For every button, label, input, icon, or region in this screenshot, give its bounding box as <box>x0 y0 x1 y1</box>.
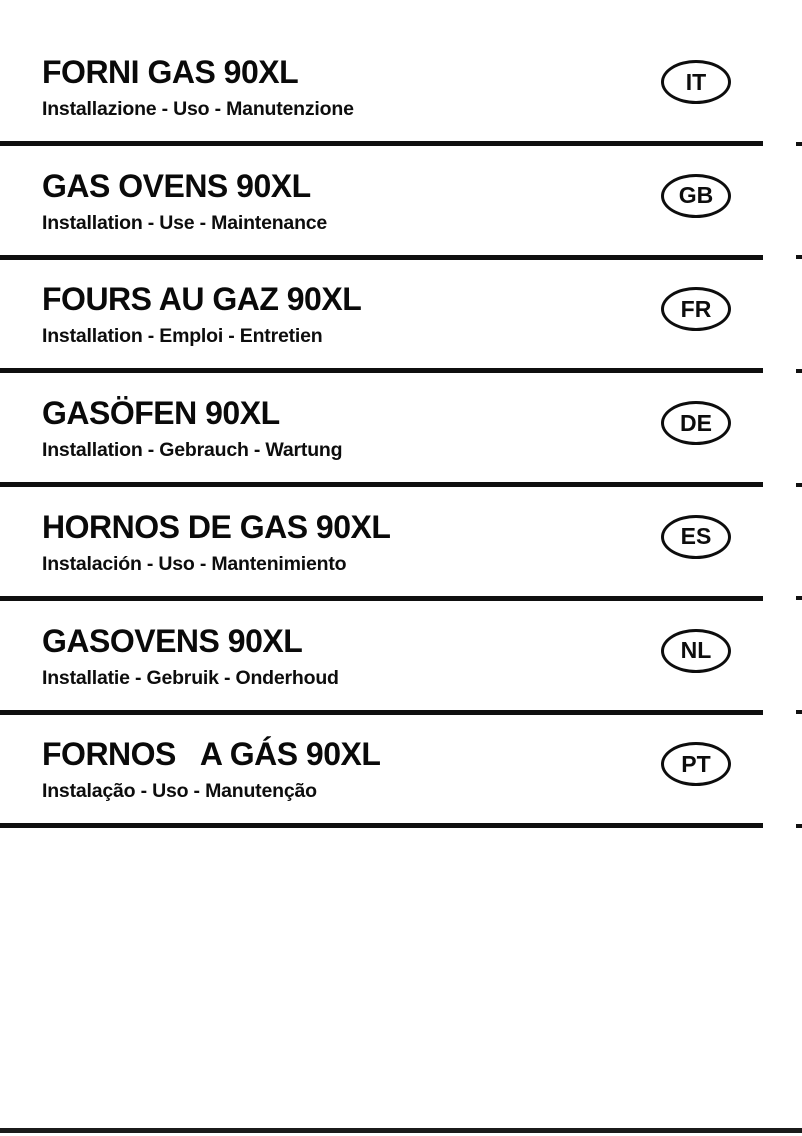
language-code: NL <box>681 637 712 664</box>
right-edge-tick <box>796 824 802 828</box>
language-badge-oval: FR <box>661 287 731 331</box>
language-section-es: HORNOS DE GAS 90XL Instalación - Uso - M… <box>0 487 802 601</box>
language-section-it: FORNI GAS 90XL Installazione - Uso - Man… <box>0 32 802 146</box>
language-section-nl: GASOVENS 90XL Installatie - Gebruik - On… <box>0 601 802 715</box>
section-title: FORNI GAS 90XL <box>42 54 298 91</box>
section-subtitle: Instalación - Uso - Mantenimiento <box>42 553 346 576</box>
language-badge-oval: PT <box>661 742 731 786</box>
section-subtitle: Instalação - Uso - Manutenção <box>42 780 317 803</box>
language-section-de: GASÖFEN 90XL Installation - Gebrauch - W… <box>0 373 802 487</box>
language-code: PT <box>681 751 710 778</box>
section-subtitle: Installation - Use - Maintenance <box>42 212 327 235</box>
section-title: FOURS AU GAZ 90XL <box>42 281 361 318</box>
section-title: GAS OVENS 90XL <box>42 168 311 205</box>
section-subtitle: Installazione - Uso - Manutenzione <box>42 98 354 121</box>
language-section-pt: FORNOS A GÁS 90XL Instalação - Uso - Man… <box>0 714 802 828</box>
section-divider <box>0 823 763 828</box>
language-badge-oval: DE <box>661 401 731 445</box>
page-bottom-rule <box>0 1128 802 1133</box>
language-badge-oval: NL <box>661 629 731 673</box>
section-subtitle: Installation - Gebrauch - Wartung <box>42 439 342 462</box>
section-title: FORNOS A GÁS 90XL <box>42 736 380 773</box>
section-title: GASOVENS 90XL <box>42 623 302 660</box>
manual-cover-page: FORNI GAS 90XL Installazione - Uso - Man… <box>0 0 802 1136</box>
language-badge-oval: GB <box>661 174 731 218</box>
language-code: GB <box>679 182 714 209</box>
language-code: ES <box>681 523 712 550</box>
section-subtitle: Installation - Emploi - Entretien <box>42 325 323 348</box>
section-subtitle: Installatie - Gebruik - Onderhoud <box>42 667 339 690</box>
language-code: IT <box>686 69 706 96</box>
language-badge-oval: IT <box>661 60 731 104</box>
language-code: DE <box>680 410 712 437</box>
section-title: GASÖFEN 90XL <box>42 395 280 432</box>
section-title: HORNOS DE GAS 90XL <box>42 509 390 546</box>
language-section-gb: GAS OVENS 90XL Installation - Use - Main… <box>0 146 802 260</box>
language-code: FR <box>681 296 712 323</box>
language-section-fr: FOURS AU GAZ 90XL Installation - Emploi … <box>0 259 802 373</box>
language-badge-oval: ES <box>661 515 731 559</box>
